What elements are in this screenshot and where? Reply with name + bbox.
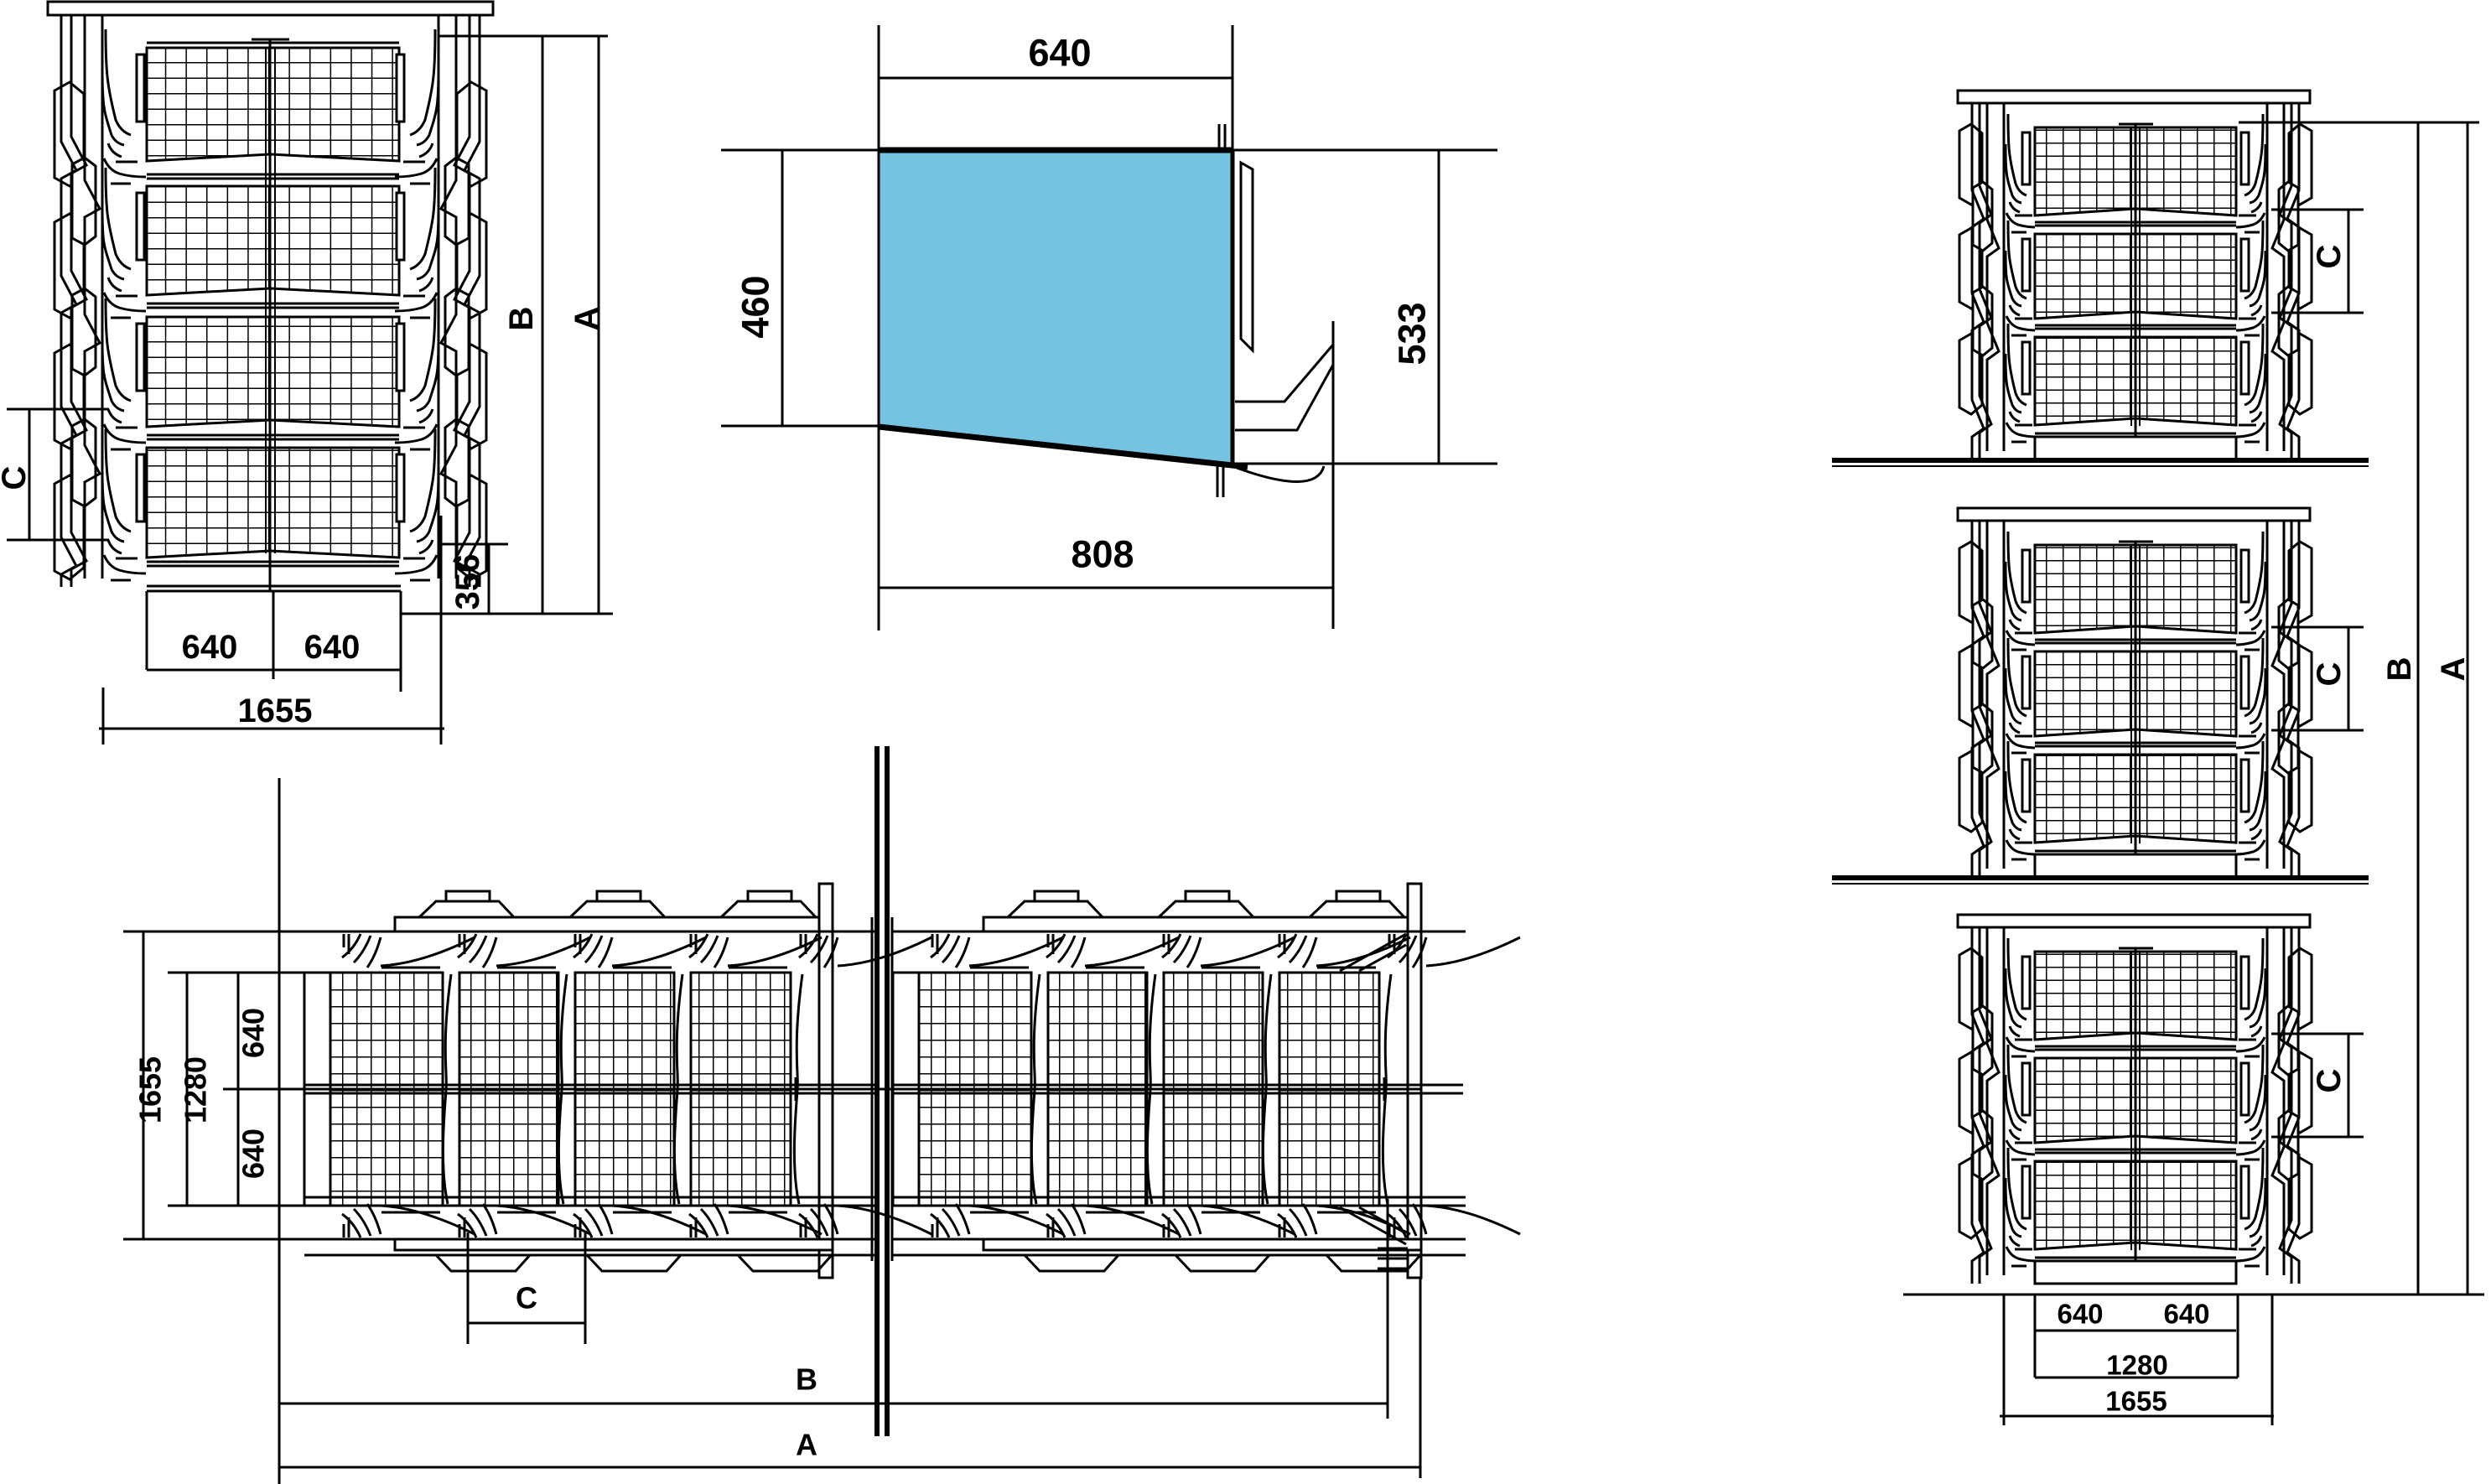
- svg-text:640: 640: [304, 629, 361, 666]
- svg-text:1280: 1280: [2106, 1350, 2167, 1381]
- svg-text:640: 640: [2057, 1299, 2103, 1330]
- svg-text:1655: 1655: [2105, 1386, 2167, 1417]
- svg-text:1655: 1655: [238, 693, 313, 729]
- svg-text:808: 808: [1071, 533, 1134, 576]
- svg-text:356: 356: [449, 554, 486, 610]
- svg-text:A: A: [796, 1428, 817, 1462]
- svg-text:533: 533: [1391, 302, 1434, 365]
- svg-text:A: A: [2435, 657, 2472, 682]
- svg-text:A: A: [568, 307, 605, 331]
- svg-text:460: 460: [734, 275, 777, 338]
- svg-text:B: B: [2381, 657, 2418, 682]
- svg-text:640: 640: [2163, 1299, 2209, 1330]
- svg-text:B: B: [796, 1362, 817, 1397]
- svg-text:640: 640: [236, 1129, 271, 1179]
- svg-text:1655: 1655: [133, 1056, 168, 1123]
- svg-text:640: 640: [236, 1008, 271, 1058]
- svg-text:B: B: [503, 307, 540, 331]
- svg-text:640: 640: [182, 629, 238, 666]
- svg-text:640: 640: [1028, 32, 1091, 75]
- svg-text:1280: 1280: [179, 1056, 213, 1123]
- svg-text:C: C: [516, 1281, 537, 1315]
- svg-text:C: C: [0, 466, 33, 490]
